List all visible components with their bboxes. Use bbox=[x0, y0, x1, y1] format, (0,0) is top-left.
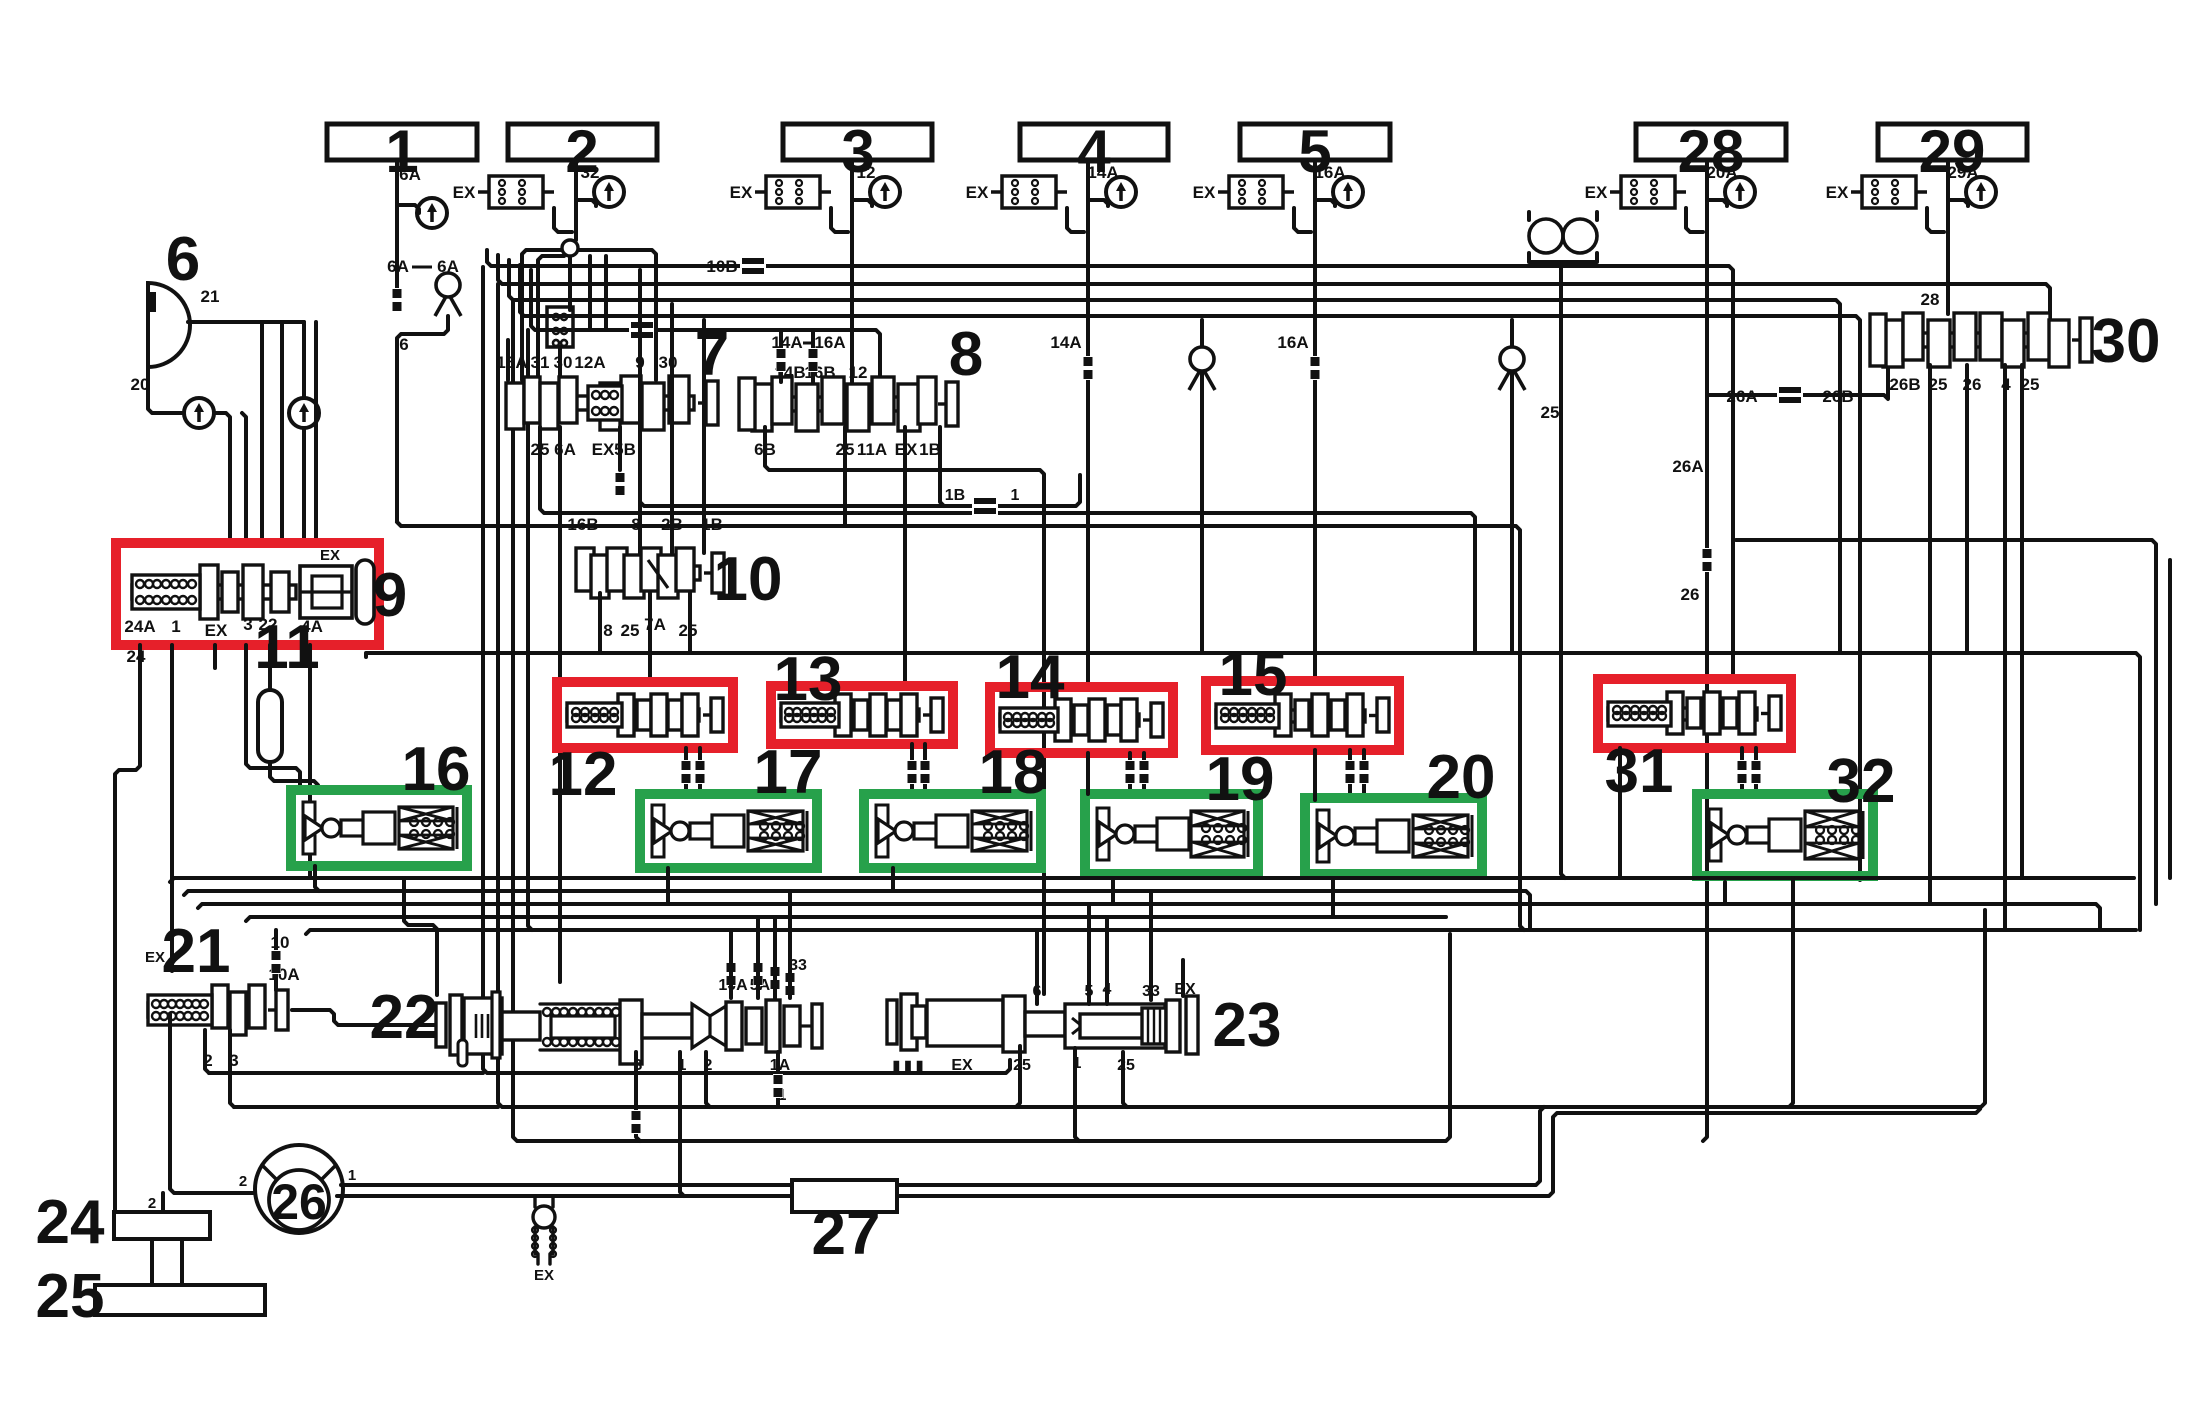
svg-text:6A: 6A bbox=[399, 165, 421, 184]
svg-text:▮ ▮ ▮: ▮ ▮ ▮ bbox=[893, 1057, 924, 1073]
svg-text:EX: EX bbox=[1193, 183, 1216, 202]
svg-text:25: 25 bbox=[1013, 1057, 1031, 1074]
svg-text:1A: 1A bbox=[770, 1057, 791, 1074]
svg-text:12: 12 bbox=[857, 163, 876, 182]
svg-text:28: 28 bbox=[1921, 290, 1940, 309]
svg-text:30: 30 bbox=[554, 353, 573, 372]
svg-text:16: 16 bbox=[402, 735, 471, 804]
svg-text:20: 20 bbox=[1427, 743, 1496, 812]
svg-text:26A: 26A bbox=[1672, 457, 1703, 476]
svg-text:12: 12 bbox=[549, 740, 618, 809]
svg-text:32: 32 bbox=[581, 163, 600, 182]
svg-text:1: 1 bbox=[171, 617, 180, 636]
svg-text:26B: 26B bbox=[1822, 387, 1853, 406]
svg-text:6A: 6A bbox=[554, 440, 576, 459]
svg-text:22: 22 bbox=[370, 983, 439, 1052]
svg-text:26: 26 bbox=[271, 1174, 327, 1230]
svg-text:31: 31 bbox=[531, 353, 550, 372]
svg-text:6: 6 bbox=[166, 225, 200, 294]
svg-text:2: 2 bbox=[239, 1173, 247, 1190]
svg-text:7: 7 bbox=[695, 320, 729, 389]
svg-text:6: 6 bbox=[399, 335, 408, 354]
svg-text:26: 26 bbox=[1681, 585, 1700, 604]
svg-text:16A: 16A bbox=[814, 333, 845, 352]
svg-text:10: 10 bbox=[271, 933, 290, 952]
svg-text:25: 25 bbox=[621, 621, 640, 640]
svg-text:24: 24 bbox=[127, 647, 146, 666]
svg-text:26A: 26A bbox=[1726, 387, 1757, 406]
svg-text:EX: EX bbox=[1174, 981, 1196, 998]
svg-text:EX: EX bbox=[320, 547, 340, 564]
svg-text:10: 10 bbox=[714, 545, 783, 614]
svg-text:6A: 6A bbox=[387, 257, 409, 276]
svg-text:21: 21 bbox=[201, 287, 220, 306]
svg-text:27: 27 bbox=[812, 1199, 881, 1268]
svg-text:1: 1 bbox=[348, 1167, 356, 1184]
svg-text:1B: 1B bbox=[919, 440, 941, 459]
svg-text:8: 8 bbox=[949, 320, 983, 389]
svg-text:25: 25 bbox=[1117, 1057, 1135, 1074]
svg-text:1B: 1B bbox=[945, 487, 965, 504]
svg-text:9: 9 bbox=[373, 561, 407, 630]
svg-text:6B: 6B bbox=[754, 440, 776, 459]
svg-text:14A: 14A bbox=[1050, 333, 1081, 352]
svg-text:EX: EX bbox=[205, 621, 228, 640]
svg-text:8: 8 bbox=[603, 621, 612, 640]
svg-text:11A: 11A bbox=[857, 440, 887, 459]
svg-text:EX: EX bbox=[730, 183, 753, 202]
svg-text:19: 19 bbox=[1206, 745, 1275, 814]
svg-text:24A: 24A bbox=[124, 617, 155, 636]
svg-text:EX: EX bbox=[1826, 183, 1849, 202]
svg-text:14: 14 bbox=[996, 643, 1065, 712]
svg-text:10B: 10B bbox=[706, 257, 737, 276]
svg-text:5B: 5B bbox=[614, 440, 636, 459]
svg-text:EX: EX bbox=[453, 183, 476, 202]
svg-text:7A: 7A bbox=[644, 615, 666, 634]
svg-text:26B: 26B bbox=[1889, 375, 1920, 394]
svg-text:2: 2 bbox=[148, 1195, 156, 1212]
svg-text:17: 17 bbox=[754, 738, 823, 807]
svg-text:13: 13 bbox=[774, 645, 843, 714]
svg-text:EX: EX bbox=[145, 949, 165, 966]
svg-text:23: 23 bbox=[1213, 991, 1282, 1060]
svg-text:EX: EX bbox=[951, 1057, 973, 1074]
svg-text:15: 15 bbox=[1219, 640, 1288, 709]
svg-text:25: 25 bbox=[1541, 403, 1560, 422]
svg-text:16A: 16A bbox=[1277, 333, 1308, 352]
svg-text:25: 25 bbox=[36, 1262, 105, 1331]
svg-text:12A: 12A bbox=[574, 353, 605, 372]
svg-text:31: 31 bbox=[1605, 737, 1674, 806]
svg-text:EX: EX bbox=[534, 1267, 554, 1284]
svg-text:30: 30 bbox=[2092, 307, 2161, 376]
svg-text:1: 1 bbox=[1011, 487, 1020, 504]
svg-text:30: 30 bbox=[659, 353, 678, 372]
svg-text:12: 12 bbox=[849, 363, 868, 382]
svg-text:18: 18 bbox=[979, 738, 1048, 807]
svg-text:EX: EX bbox=[966, 183, 989, 202]
svg-text:32: 32 bbox=[1827, 747, 1896, 816]
svg-text:24: 24 bbox=[36, 1188, 105, 1257]
svg-text:16A: 16A bbox=[496, 353, 527, 372]
svg-text:21: 21 bbox=[162, 917, 231, 986]
svg-text:EX: EX bbox=[1585, 183, 1608, 202]
svg-text:3: 3 bbox=[243, 615, 252, 634]
svg-text:EX: EX bbox=[592, 440, 615, 459]
